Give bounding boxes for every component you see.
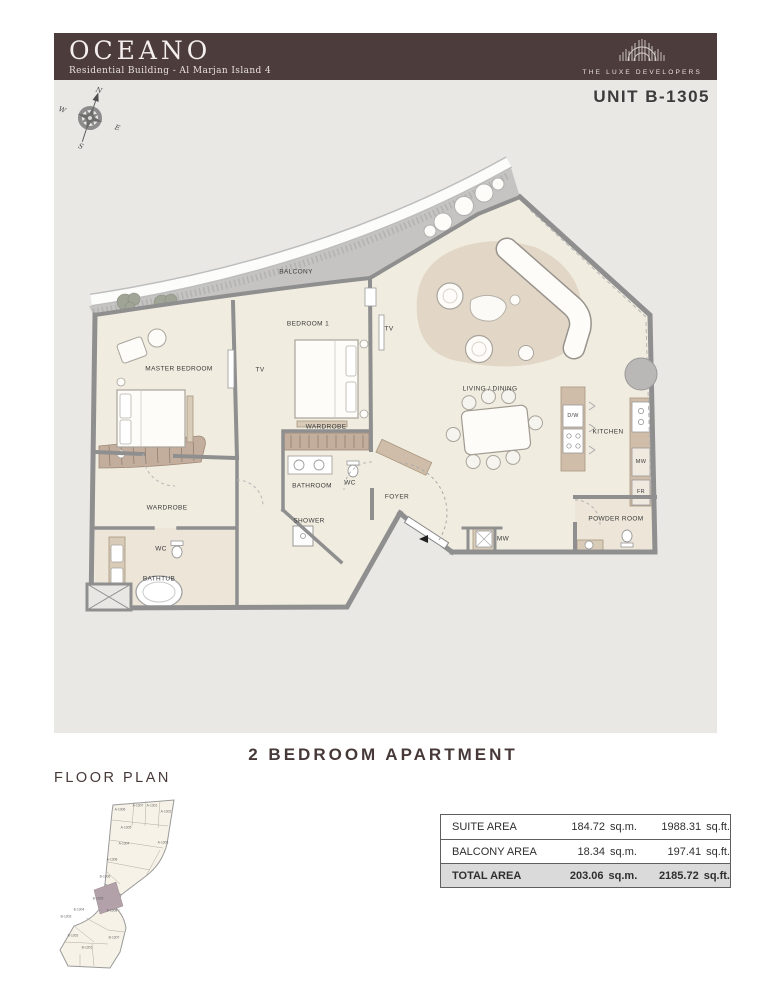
keyplan-unit: B-1304: [74, 908, 85, 911]
keyplan-unit: A-1308: [107, 858, 118, 861]
keyplan-unit: B-1307: [109, 936, 120, 939]
area-sqm-value: 184.72: [560, 821, 606, 833]
brand-logo: OCEANO: [69, 38, 271, 63]
room-label: D/W: [567, 413, 578, 419]
area-sqm-unit: sq.m.: [604, 870, 645, 882]
plan-canvas: UNIT B-1305 N E S W: [54, 80, 717, 733]
keyplan-unit: B-1308: [107, 909, 118, 912]
room-label: MW: [497, 536, 509, 543]
luxe-developers-logo-icon: [614, 38, 670, 67]
area-sqft-unit: sq.ft.: [701, 821, 730, 833]
room-label: SHOWER: [293, 518, 324, 525]
area-sqft-value: 2185.72: [645, 870, 699, 882]
keyplan-unit: B-1302: [68, 934, 79, 937]
room-label: BALCONY: [279, 269, 313, 276]
keyplan-unit: A-1307: [133, 804, 144, 807]
keyplan-unit: A-1305: [121, 826, 132, 829]
keyplan-unit: A-1304: [119, 842, 130, 845]
room-label: FR: [637, 489, 645, 495]
room-label: BATHTUB: [143, 576, 175, 583]
room-label: MASTER BEDROOM: [145, 366, 212, 373]
entry-arrow-icon: [419, 535, 428, 543]
compass-e: E: [113, 123, 121, 133]
room-label: BEDROOM 1: [287, 321, 329, 328]
column: [625, 358, 657, 390]
area-sqft-value: 1988.31: [646, 821, 701, 833]
brand-subtitle: Residential Building - Al Marjan Island …: [69, 66, 271, 76]
area-sqm-unit: sq.m.: [605, 846, 646, 858]
area-row-label: BALCONY AREA: [441, 846, 560, 858]
room-label: WC: [344, 480, 356, 487]
area-sqm-value: 18.34: [560, 846, 606, 858]
room-label: WARDROBE: [306, 424, 347, 431]
area-sqft-unit: sq.ft.: [699, 870, 730, 882]
room-label: FOYER: [385, 494, 409, 501]
compass-n: N: [94, 85, 104, 95]
floor-plan-heading: FLOOR PLAN: [54, 770, 171, 786]
room-label: BATHROOM: [292, 483, 332, 490]
header-bar: OCEANO Residential Building - Al Marjan …: [54, 33, 717, 80]
room-label: MW: [636, 459, 646, 465]
compass-rose-icon: N E S W: [57, 85, 123, 156]
room-label: POWDER ROOM: [588, 516, 643, 523]
room-label: LIVING / DINING: [463, 386, 518, 393]
keyplan-unit: A-1301: [147, 804, 158, 807]
compass-w: W: [57, 105, 67, 115]
keyplan-unit: A-1306: [115, 808, 126, 811]
area-sqft-value: 197.41: [646, 846, 701, 858]
developer-name: THE LUXE DEVELOPERS: [583, 69, 702, 76]
keyplan-unit: A-1303: [158, 841, 169, 844]
room-label: KITCHEN: [593, 429, 624, 436]
area-sqft-unit: sq.ft.: [701, 846, 730, 858]
keyplan-unit: B-1303: [61, 915, 72, 918]
keyplan-unit: A-1302: [161, 810, 172, 813]
area-sqm-value: 203.06: [558, 870, 603, 882]
room-label: WC: [155, 546, 167, 553]
keyplan-unit-highlighted: B-1305: [93, 897, 104, 900]
area-table-row: SUITE AREA184.72sq.m.1988.31sq.ft.: [441, 815, 730, 839]
room-label: TV: [384, 326, 393, 333]
area-sqm-unit: sq.m.: [605, 821, 646, 833]
area-table-row: TOTAL AREA203.06sq.m.2185.72sq.ft.: [441, 863, 730, 887]
key-plan: A-1306A-1307A-1301A-1302A-1305A-1304A-13…: [50, 792, 210, 992]
room-label: WARDROBE: [147, 505, 188, 512]
area-table-row: BALCONY AREA18.34sq.m.197.41sq.ft.: [441, 839, 730, 863]
room-label: TV: [255, 367, 264, 374]
area-row-label: SUITE AREA: [441, 821, 560, 833]
unit-number: UNIT B-1305: [593, 87, 710, 107]
area-table: SUITE AREA184.72sq.m.1988.31sq.ft.BALCON…: [440, 814, 731, 888]
keyplan-unit: B-1306: [100, 875, 111, 878]
floor-plan-drawing: BALCONYMASTER BEDROOMBEDROOM 1TVTVLIVING…: [83, 150, 683, 670]
area-row-label: TOTAL AREA: [441, 870, 558, 882]
page-title: 2 BEDROOM APARTMENT: [0, 745, 766, 765]
keyplan-unit: B-1301: [82, 946, 93, 949]
